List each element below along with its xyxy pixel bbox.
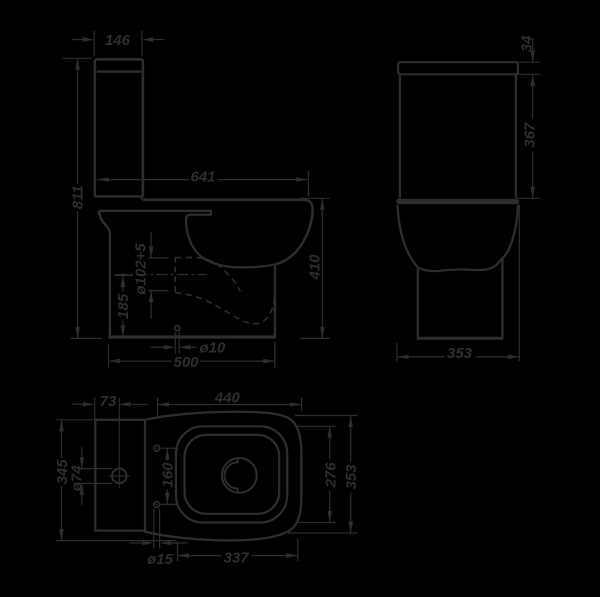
svg-text:811: 811 — [70, 185, 87, 209]
svg-text:276: 276 — [323, 462, 340, 489]
svg-text:440: 440 — [214, 389, 241, 406]
svg-text:353: 353 — [447, 345, 473, 362]
svg-text:500: 500 — [173, 354, 199, 371]
svg-text:337: 337 — [224, 550, 250, 567]
svg-text:34: 34 — [518, 35, 535, 52]
svg-text:160: 160 — [159, 462, 176, 488]
svg-text:73: 73 — [100, 393, 117, 410]
svg-text:367: 367 — [521, 122, 538, 148]
svg-text:410: 410 — [306, 254, 323, 281]
svg-text:ø102+5: ø102+5 — [133, 243, 150, 295]
svg-text:ø10: ø10 — [200, 340, 227, 357]
svg-text:146: 146 — [105, 32, 131, 49]
svg-text:ø74: ø74 — [68, 465, 85, 492]
svg-text:ø15: ø15 — [147, 551, 174, 568]
svg-text:353: 353 — [343, 464, 360, 490]
svg-text:185: 185 — [115, 293, 132, 319]
svg-text:641: 641 — [190, 169, 215, 186]
